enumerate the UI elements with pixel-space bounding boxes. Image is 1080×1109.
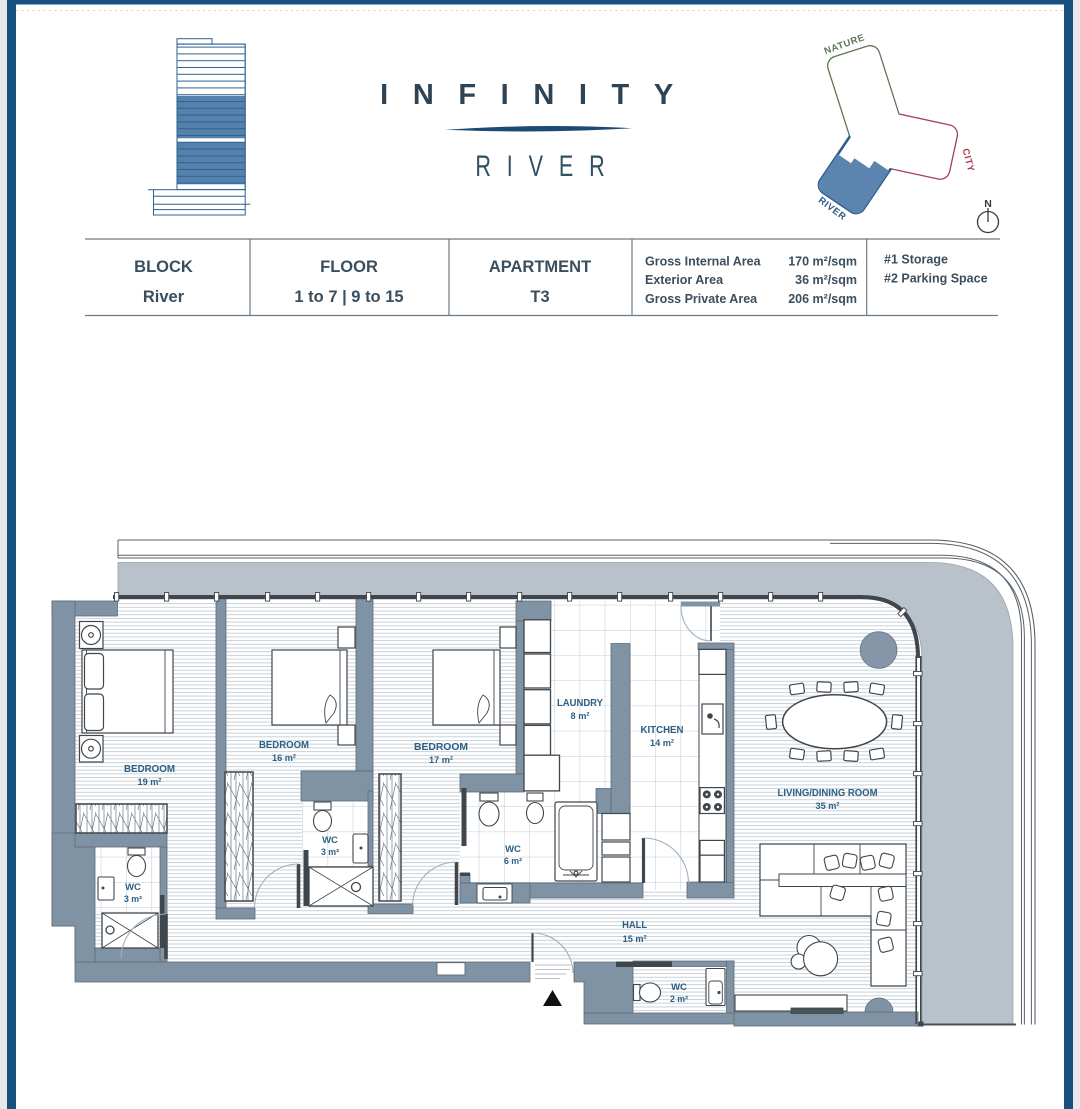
svg-text:RIVER: RIVER <box>475 148 620 182</box>
svg-text:BEDROOM: BEDROOM <box>259 739 309 751</box>
svg-text:BLOCK: BLOCK <box>134 258 193 276</box>
svg-text:1 to 7 | 9 to 15: 1 to 7 | 9 to 15 <box>294 288 403 306</box>
svg-text:#1 Storage: #1 Storage <box>884 253 948 267</box>
svg-text:BEDROOM: BEDROOM <box>124 763 175 775</box>
svg-text:WC: WC <box>322 835 338 846</box>
svg-text:3 m²: 3 m² <box>124 894 142 904</box>
svg-text:KITCHEN: KITCHEN <box>641 724 684 736</box>
svg-text:INFINITY: INFINITY <box>380 79 698 111</box>
svg-text:BEDROOM: BEDROOM <box>414 741 468 753</box>
svg-text:#2 Parking Space: #2 Parking Space <box>884 272 988 286</box>
svg-text:LIVING/DINING ROOM: LIVING/DINING ROOM <box>778 787 878 799</box>
svg-text:Exterior Area: Exterior Area <box>645 273 724 287</box>
svg-text:WC: WC <box>671 982 687 993</box>
svg-text:8 m²: 8 m² <box>571 711 590 721</box>
svg-text:LAUNDRY: LAUNDRY <box>557 697 603 709</box>
svg-text:16 m²: 16 m² <box>272 753 296 763</box>
svg-text:206 m²/sqm: 206 m²/sqm <box>788 292 857 306</box>
svg-text:36 m²/sqm: 36 m²/sqm <box>795 273 857 287</box>
svg-text:FLOOR: FLOOR <box>320 258 378 276</box>
svg-text:N: N <box>984 198 992 210</box>
svg-text:River: River <box>143 288 185 306</box>
svg-text:14 m²: 14 m² <box>650 738 674 748</box>
svg-text:HALL: HALL <box>622 919 648 931</box>
svg-text:35 m²: 35 m² <box>815 801 839 811</box>
svg-text:170 m²/sqm: 170 m²/sqm <box>788 255 857 269</box>
svg-text:WC: WC <box>505 844 521 855</box>
svg-text:Gross Internal Area: Gross Internal Area <box>645 255 762 269</box>
svg-text:19 m²: 19 m² <box>137 777 161 787</box>
svg-text:WC: WC <box>125 882 141 893</box>
svg-text:APARTMENT: APARTMENT <box>489 258 591 276</box>
svg-text:T3: T3 <box>530 288 549 306</box>
svg-text:Gross Private Area: Gross Private Area <box>645 292 758 306</box>
svg-text:15 m²: 15 m² <box>623 934 647 944</box>
svg-text:17 m²: 17 m² <box>429 755 453 765</box>
svg-text:6 m²: 6 m² <box>504 856 522 866</box>
svg-text:3 m²: 3 m² <box>321 847 339 857</box>
svg-text:2 m²: 2 m² <box>670 994 688 1004</box>
